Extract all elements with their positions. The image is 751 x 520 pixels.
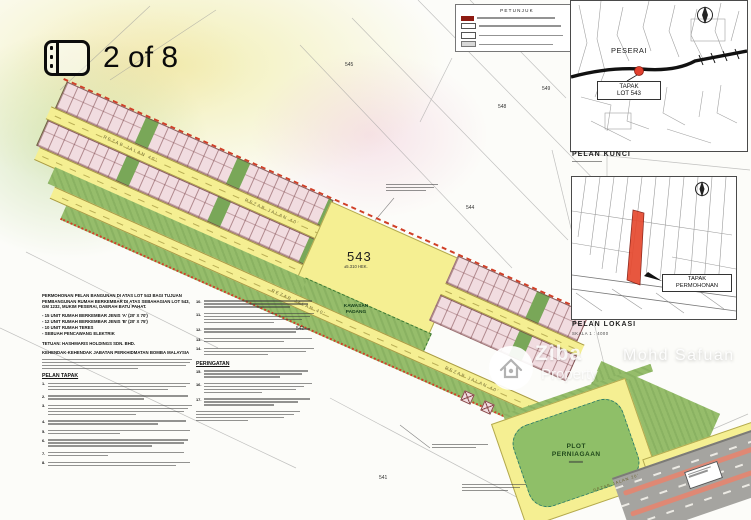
legend-row: [461, 16, 573, 21]
neighbour-lot-number: 545: [345, 62, 353, 68]
neighbour-lot-number: 549: [542, 86, 550, 92]
key-plan-caption: PELAN KUNCI: [572, 151, 631, 158]
location-plan-scale: SKALA 1 : 4000: [572, 331, 609, 336]
location-plan-map: [572, 177, 736, 319]
watermark-brand-sub: Property: [541, 366, 598, 383]
site-tag: TAPAK PERMOHONAN: [662, 274, 732, 292]
gallery-icon: [44, 40, 90, 76]
key-plan-map: [571, 1, 747, 151]
neighbour-lot-number: 541: [379, 475, 387, 481]
site-plan-heading: PELAN TAPAK: [42, 373, 194, 379]
legend-swatch: [461, 16, 474, 21]
watermark-brand: Ziba: [535, 342, 582, 366]
annotation: [462, 484, 528, 493]
main-lot-area: ±5.310 HEK.: [344, 264, 368, 269]
photo-counter-badge[interactable]: 2 of 8: [44, 40, 178, 76]
legend: PETUNJUK: [455, 4, 579, 52]
watermark-agent-name: Mohd Safuan: [623, 347, 735, 365]
legend-row: [461, 32, 573, 39]
legend-title: PETUNJUK: [461, 8, 573, 13]
legend-swatch: [461, 41, 476, 47]
paragraph: [42, 359, 194, 369]
paragraph: [196, 411, 314, 421]
playing-field-label: KAWASAN PADANG: [334, 304, 378, 316]
title-block: PERMOHONAN PELAN BANGUNAN DI ATAS LOT 54…: [42, 293, 194, 471]
photo-counter-label: 2 of 8: [103, 41, 178, 75]
annotation: [432, 444, 492, 450]
location-plan-caption: PELAN LOKASI: [572, 321, 636, 328]
legend-swatch: [461, 32, 476, 39]
neighbour-lot-number: 548: [498, 104, 506, 110]
town-label: PESERAI: [611, 46, 647, 55]
legend-row: [461, 23, 573, 29]
ziba-logo-icon: [489, 346, 533, 390]
neighbour-lot-number: 544: [466, 205, 474, 211]
legend-row: [461, 41, 573, 47]
main-lot-number: 543: [347, 249, 372, 264]
annotation: [386, 184, 444, 193]
unit-list: - 15 UNIT RUMAH BERKEMBAR JENIS 'A' (20'…: [42, 313, 194, 338]
project-description: PERMOHONAN PELAN BANGUNAN DI ATAS LOT 54…: [42, 293, 194, 310]
legend-swatch: [461, 23, 476, 29]
site-tag: TAPAK LOT 543: [597, 81, 661, 100]
compass-icon: [698, 6, 713, 24]
key-plan-scale: [572, 161, 606, 164]
fire-dept-line: KEHENDAK-KEHENDAK JABATAN PERKHIDMATAN B…: [42, 350, 194, 355]
reminder-heading: PERINGATAN: [196, 361, 314, 367]
owner-line: TETUAN: HASHMARIS HOLDINGS SDN. BHD.: [42, 341, 194, 346]
site-plan-photo: REZAB JALAN 40' REZAB JALAN 40' REZAB JA…: [0, 0, 751, 520]
notes-column: 10. 11. 12. 13. 14. PERINGATAN 15. 16. 1…: [196, 300, 314, 423]
location-plan-inset: TAPAK PERMOHONAN: [571, 176, 737, 320]
business-plot-label: PLOT PERNIAGAAN: [552, 443, 601, 463]
key-plan-inset: PESERAI TAPAK LOT 543: [570, 0, 748, 152]
